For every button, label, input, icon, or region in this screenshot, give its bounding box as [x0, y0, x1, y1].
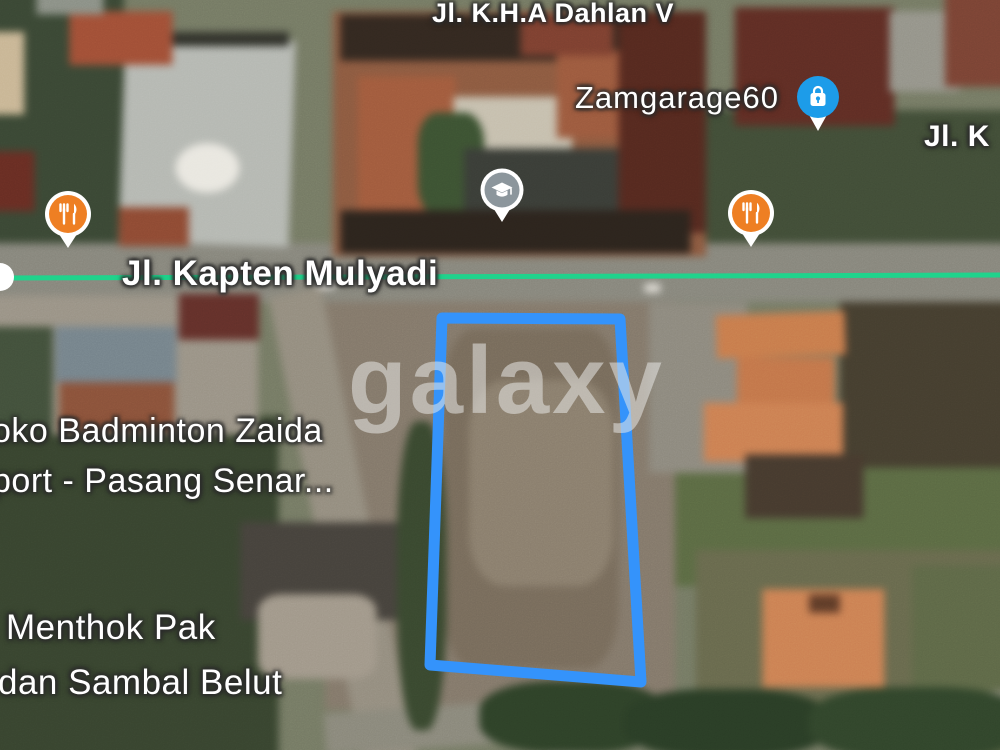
- terrain-patch: [37, 0, 104, 15]
- poi-label-menthok-line2[interactable]: dan Sambal Belut: [0, 663, 282, 703]
- restaurant-pin-east[interactable]: [727, 189, 775, 249]
- watermark: galaxy: [348, 326, 665, 436]
- terrain-patch: [0, 151, 34, 211]
- terrain-patch: [69, 11, 172, 65]
- terrain-patch: [737, 357, 835, 404]
- terrain-patch: [716, 311, 846, 359]
- poi-label-badminton-line2[interactable]: port - Pasang Senar...: [0, 462, 334, 501]
- terrain-patch: [809, 594, 840, 613]
- terrain-patch: [809, 687, 1000, 750]
- poi-label-zamgarage60[interactable]: Zamgarage60: [575, 80, 779, 116]
- terrain-patch: [618, 11, 706, 232]
- street-label-dahlan-v: Jl. K.H.A Dahlan V: [432, 0, 674, 29]
- poi-label-badminton-line1[interactable]: oko Badminton Zaida: [0, 412, 323, 451]
- street-label-kapten-mulyadi: Jl. Kapten Mulyadi: [122, 254, 438, 294]
- terrain-patch: [179, 294, 259, 340]
- partial-pin-west-edge[interactable]: [0, 262, 15, 292]
- restaurant-pin-icon: [44, 190, 92, 250]
- satellite-map-view[interactable]: galaxy: [0, 0, 1000, 750]
- terrain-patch: [119, 207, 189, 246]
- terrain-patch: [745, 454, 863, 518]
- restaurant-pin-west[interactable]: [44, 190, 92, 250]
- school-pin[interactable]: [480, 168, 524, 224]
- school-pin-icon: [480, 168, 524, 224]
- shopping-pin[interactable]: [795, 75, 841, 135]
- restaurant-pin-icon: [727, 189, 775, 249]
- terrain-patch: [176, 143, 240, 192]
- shopping-pin-icon: [795, 75, 841, 135]
- terrain-patch: [397, 421, 446, 730]
- partial-pin-icon: [0, 262, 15, 292]
- terrain-patch: [704, 403, 843, 462]
- street-label-jl-k: Jl. K: [924, 120, 990, 154]
- terrain-patch: [0, 32, 24, 114]
- terrain-patch: [55, 327, 177, 384]
- vehicle: [644, 283, 660, 292]
- poi-label-menthok-line1[interactable]: Menthok Pak: [6, 608, 216, 648]
- terrain-patch: [945, 0, 1000, 87]
- terrain-patch: [624, 689, 830, 750]
